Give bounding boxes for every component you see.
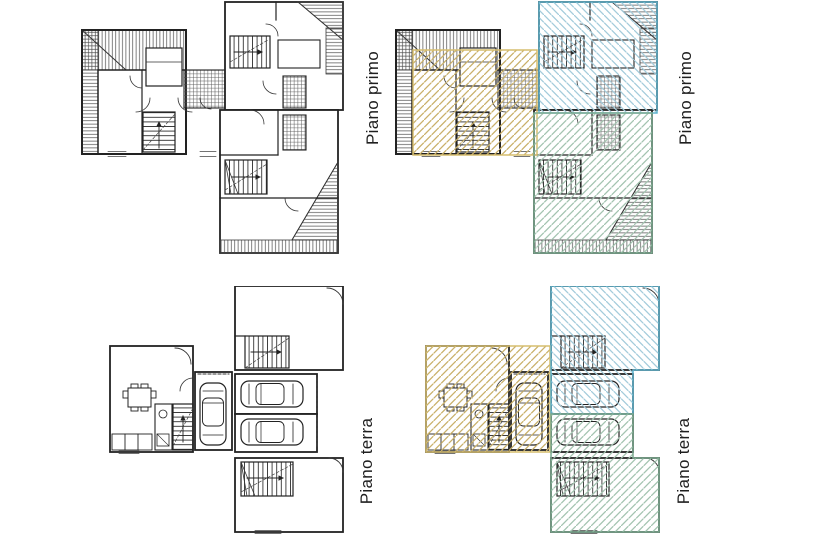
label-text: Piano primo — [363, 51, 383, 145]
label-piano-primo-right: Piano primo — [676, 43, 696, 153]
plan-piano-primo-colored — [394, 0, 660, 256]
label-piano-primo-left: Piano primo — [363, 43, 383, 153]
plan-piano-terra-colored — [411, 286, 661, 534]
sheet-background: Piano primo Piano primo Piano terra Pian… — [0, 0, 818, 540]
label-text: Piano terra — [357, 418, 377, 504]
label-piano-terra-left: Piano terra — [357, 406, 377, 516]
unit-b-region-primo — [539, 2, 657, 113]
plan-piano-primo-plain — [80, 0, 346, 256]
plan-piano-terra-plain — [95, 286, 345, 534]
unit-a-region-terra — [426, 346, 550, 452]
unit-c-region-terra — [551, 414, 659, 532]
unit-a-region-primo — [413, 50, 537, 155]
unit-b-region-terra — [551, 286, 659, 414]
label-piano-terra-right: Piano terra — [674, 406, 694, 516]
label-text: Piano primo — [676, 51, 696, 145]
unit-c-region-primo — [534, 113, 652, 253]
scanned-floor-plan-sheet: { "sheet": { "background": "#ffffff", "i… — [0, 0, 818, 540]
label-text: Piano terra — [674, 418, 694, 504]
